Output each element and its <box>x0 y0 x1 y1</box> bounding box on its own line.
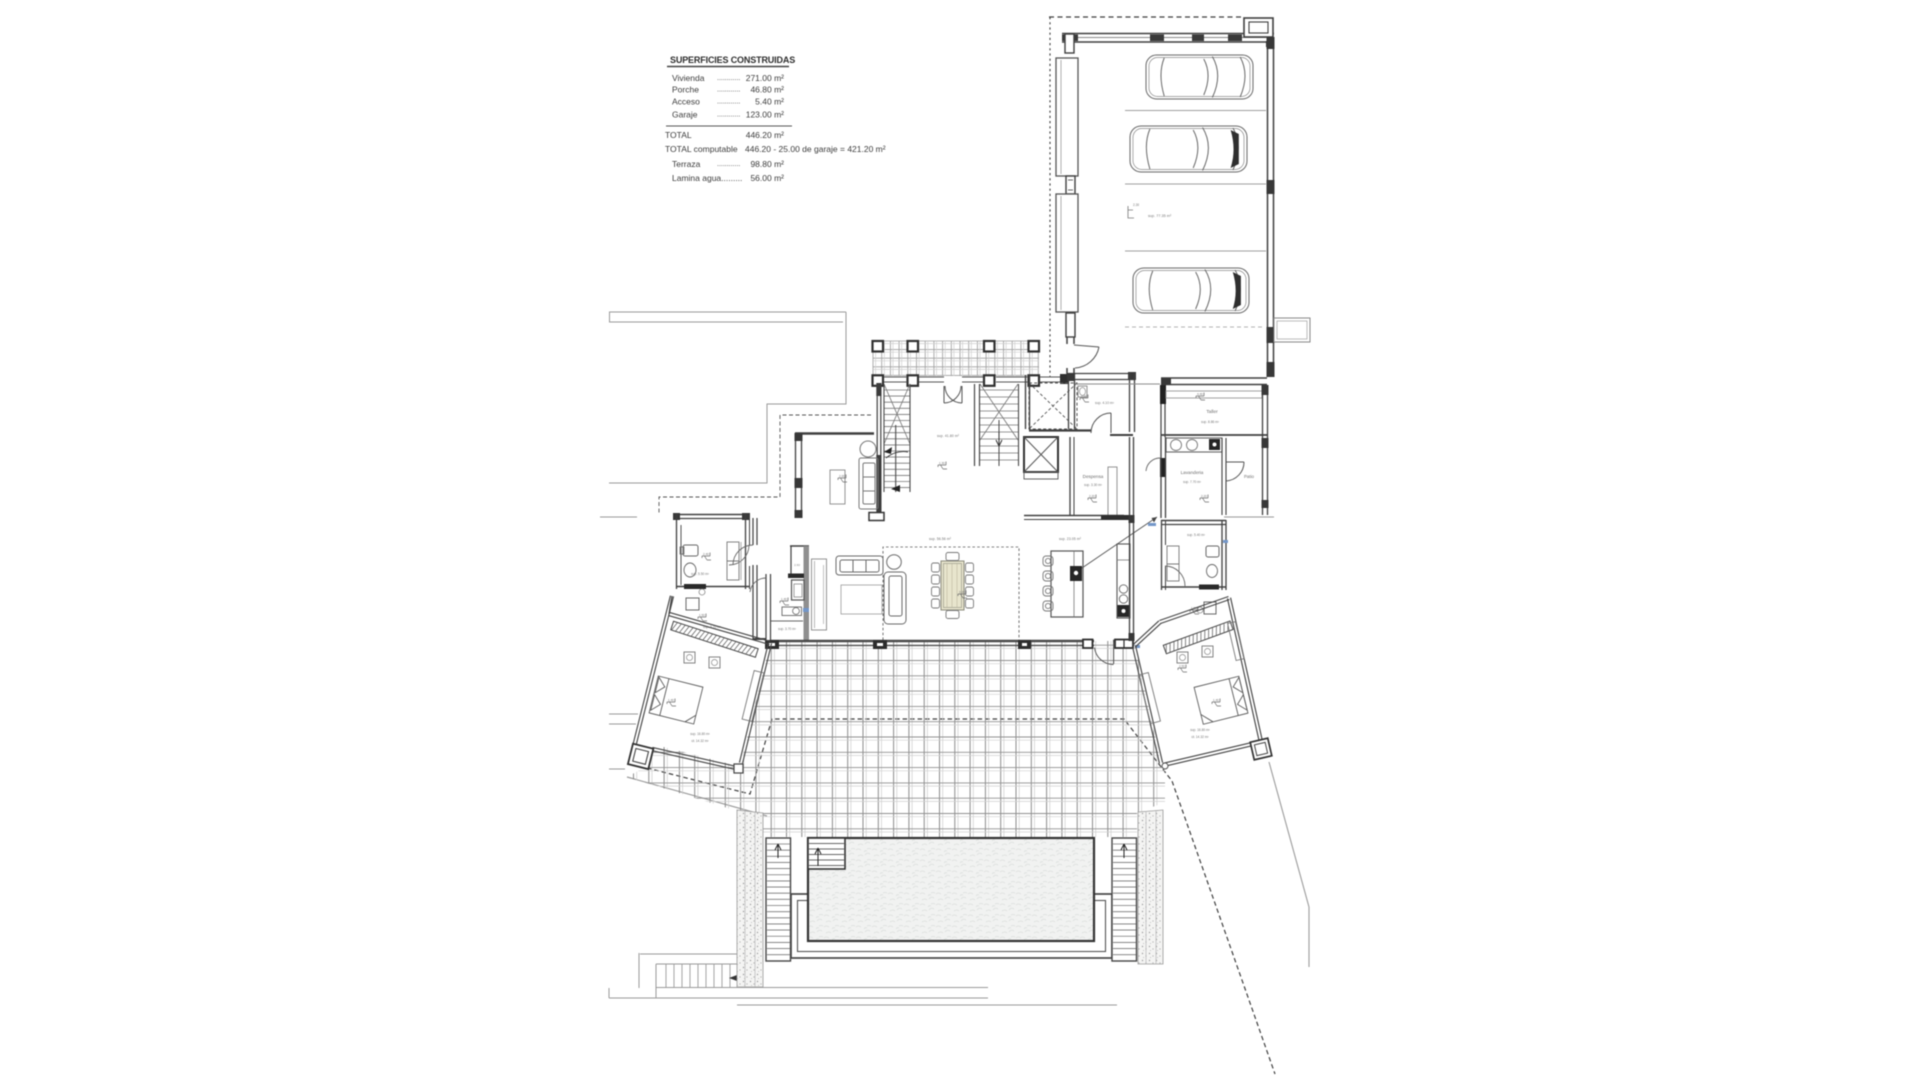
svg-text:1.30: 1.30 <box>939 461 945 465</box>
svg-text:út. 14.32 m²: út. 14.32 m² <box>1191 735 1208 739</box>
svg-text:............: ............ <box>717 87 740 94</box>
svg-text:Lamina agua.........: Lamina agua......... <box>672 173 742 183</box>
svg-text:3.20: 3.20 <box>959 590 965 594</box>
svg-text:sup. 5.40 m²: sup. 5.40 m² <box>1187 533 1205 537</box>
svg-text:4.40: 4.40 <box>1197 392 1203 396</box>
svg-text:Despensa: Despensa <box>1083 474 1104 479</box>
svg-text:sup. 77.35 m²: sup. 77.35 m² <box>1148 214 1172 218</box>
svg-text:Taller: Taller <box>1206 409 1218 415</box>
svg-text:sup. 3.70 m²: sup. 3.70 m² <box>778 627 796 631</box>
svg-text:Patio: Patio <box>1244 474 1255 479</box>
svg-text:1.40: 1.40 <box>668 698 674 702</box>
svg-text:sup. 7.70 m²: sup. 7.70 m² <box>1183 480 1201 484</box>
svg-text:446.20 m²: 446.20 m² <box>746 130 784 140</box>
svg-text:............: ............ <box>717 75 740 82</box>
svg-text:1.40: 1.40 <box>781 597 787 601</box>
svg-text:Lavanderia: Lavanderia <box>1181 470 1204 475</box>
svg-text:sup. 56.56 m²: sup. 56.56 m² <box>929 537 952 541</box>
svg-text:56.00 m²: 56.00 m² <box>750 173 784 183</box>
svg-text:271.00 m²: 271.00 m² <box>746 73 784 83</box>
svg-text:Garaje: Garaje <box>672 110 698 120</box>
svg-text:sup. 23.05 m²: sup. 23.05 m² <box>1059 537 1082 541</box>
svg-text:2.20: 2.20 <box>1201 494 1207 498</box>
svg-text:Terraza: Terraza <box>672 159 701 169</box>
svg-text:1.40: 1.40 <box>1213 698 1219 702</box>
svg-text:sup. 8.86 m²: sup. 8.86 m² <box>1201 420 1219 424</box>
svg-text:2.50: 2.50 <box>1179 664 1185 668</box>
svg-text:Vivienda: Vivienda <box>672 73 705 83</box>
svg-text:sup. 16.80 m²: sup. 16.80 m² <box>690 732 710 736</box>
svg-text:sup. 3.30 m²: sup. 3.30 m² <box>1084 483 1102 487</box>
svg-text:98.80 m²: 98.80 m² <box>750 159 784 169</box>
svg-text:sup. 41.80 m²: sup. 41.80 m² <box>937 434 960 438</box>
svg-text:sup. 16.80 m²: sup. 16.80 m² <box>1190 728 1210 732</box>
svg-text:123.00 m²: 123.00 m² <box>746 110 784 120</box>
svg-text:2.30: 2.30 <box>1133 203 1139 207</box>
svg-text:2.00: 2.00 <box>1081 394 1087 398</box>
svg-text:sup. 4.10 m²: sup. 4.10 m² <box>1095 401 1115 405</box>
svg-text:46.80 m²: 46.80 m² <box>750 85 784 95</box>
svg-text:1.50: 1.50 <box>699 613 705 617</box>
svg-text:TOTAL: TOTAL <box>665 130 692 140</box>
svg-text:............: ............ <box>717 112 740 119</box>
svg-text:TOTAL computable: TOTAL computable <box>665 144 738 154</box>
svg-text:446.20 - 25.00 de garaje = 421: 446.20 - 25.00 de garaje = 421.20 m² <box>745 144 886 154</box>
svg-text:Porche: Porche <box>672 85 699 95</box>
svg-text:2.60: 2.60 <box>794 563 800 567</box>
svg-text:2.00: 2.00 <box>839 474 845 478</box>
svg-text:5.40 m²: 5.40 m² <box>755 97 784 107</box>
svg-text:2.40: 2.40 <box>703 552 709 556</box>
svg-text:SUPERFICIES CONSTRUIDAS: SUPERFICIES CONSTRUIDAS <box>670 55 795 65</box>
svg-text:............: ............ <box>717 99 740 106</box>
svg-text:............: ............ <box>717 161 740 168</box>
svg-text:út. 14.32 m²: út. 14.32 m² <box>691 739 708 743</box>
svg-text:2.20: 2.20 <box>1089 494 1095 498</box>
svg-text:sup. 5.50 m²: sup. 5.50 m² <box>691 572 709 576</box>
svg-text:Acceso: Acceso <box>672 97 700 107</box>
